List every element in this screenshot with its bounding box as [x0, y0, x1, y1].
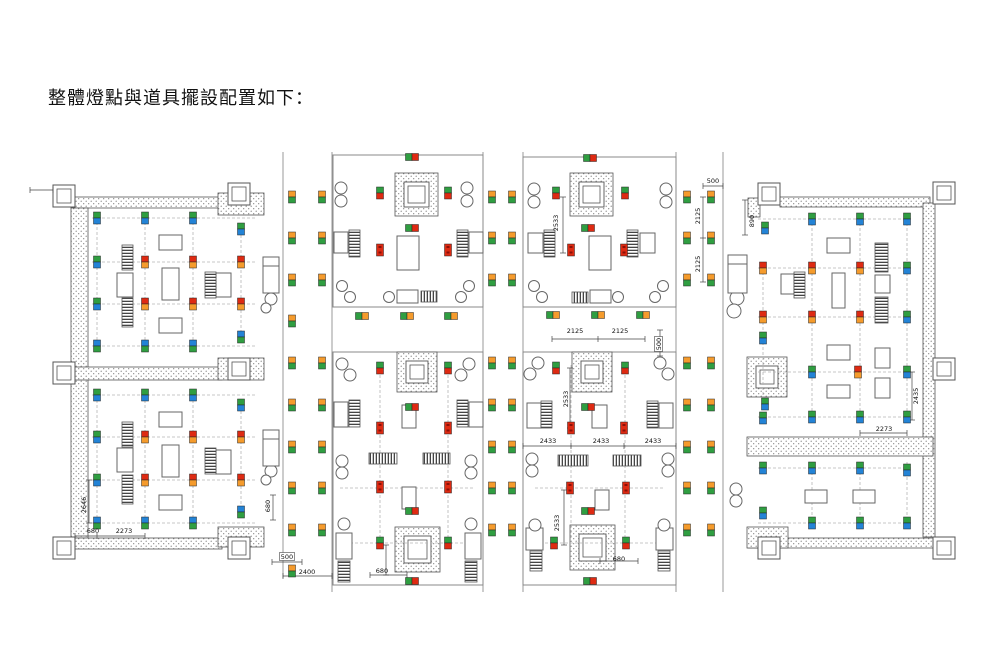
furniture-table [397, 236, 419, 270]
furniture-stool [529, 281, 540, 292]
light-marker [445, 244, 452, 256]
light-marker [637, 312, 644, 319]
furniture-stool [613, 292, 624, 303]
light-marker [551, 537, 558, 543]
light-marker [412, 404, 419, 411]
furniture-table [527, 403, 541, 428]
light-marker [289, 197, 296, 203]
dimension-label: 2533 [552, 215, 560, 232]
dimension-label: 2125 [612, 327, 629, 335]
light-marker [289, 274, 296, 280]
dimension-label: 500 [281, 553, 293, 561]
light-marker [684, 405, 691, 411]
light-marker [568, 244, 575, 256]
light-marker [643, 312, 650, 319]
light-marker [412, 154, 419, 161]
furniture-table [336, 533, 352, 559]
light-marker [319, 363, 326, 369]
corner-column-inner [57, 366, 71, 380]
furniture-stool [335, 195, 347, 207]
light-marker [319, 441, 326, 447]
furniture-table [334, 232, 348, 253]
light-marker [809, 372, 816, 378]
furniture-stool [532, 357, 544, 369]
light-marker [684, 357, 691, 363]
wall-hatch [71, 538, 222, 549]
dimension-label: 2646 [80, 497, 88, 514]
furniture-bench [349, 230, 360, 257]
light-marker [142, 304, 149, 310]
light-marker [445, 422, 452, 434]
light-marker [142, 262, 149, 268]
light-marker [142, 298, 149, 304]
light-marker [319, 405, 326, 411]
light-marker [377, 481, 384, 493]
furniture-stool [526, 465, 538, 477]
light-marker [238, 304, 245, 310]
light-marker-dot [570, 252, 573, 254]
light-marker [319, 191, 326, 197]
light-marker [553, 368, 560, 374]
light-marker-dot [379, 246, 382, 248]
light-marker [708, 191, 715, 197]
light-marker [289, 280, 296, 286]
light-marker [621, 244, 628, 256]
light-marker [94, 304, 101, 310]
light-marker [509, 197, 516, 203]
furniture-table [334, 402, 348, 427]
furniture-stool [384, 292, 395, 303]
light-marker [412, 508, 419, 515]
light-marker [708, 232, 715, 238]
dimension-label: 2533 [553, 515, 561, 532]
light-marker [684, 524, 691, 530]
light-marker [489, 357, 496, 363]
light-marker [760, 418, 767, 424]
light-marker [190, 212, 197, 218]
light-marker [857, 517, 864, 523]
light-marker [142, 218, 149, 224]
light-marker [190, 431, 197, 437]
light-marker [857, 411, 864, 417]
light-marker [708, 357, 715, 363]
light-marker [857, 523, 864, 529]
furniture-bench [544, 230, 555, 257]
furniture-stool [465, 455, 477, 467]
light-marker [622, 187, 629, 193]
light-marker [406, 578, 413, 585]
wall-hatch [747, 437, 933, 456]
light-marker [289, 482, 296, 488]
light-marker [857, 268, 864, 274]
light-marker-dot [623, 424, 626, 426]
furniture-bench [369, 453, 397, 464]
light-marker [451, 313, 458, 320]
light-marker [553, 187, 560, 193]
light-marker [190, 389, 197, 395]
corner-column-inner [937, 186, 951, 200]
light-marker [489, 280, 496, 286]
light-marker [412, 578, 419, 585]
furniture-table [595, 490, 609, 510]
light-marker [684, 399, 691, 405]
furniture-bench [457, 230, 468, 257]
light-marker [809, 219, 816, 225]
dimension-label: 680 [87, 527, 99, 535]
wall-hatch [780, 197, 930, 207]
light-marker [582, 404, 589, 411]
light-marker [708, 405, 715, 411]
light-marker [412, 225, 419, 232]
light-marker [588, 404, 595, 411]
wall-hatch [71, 197, 222, 208]
light-marker [708, 399, 715, 405]
light-marker [809, 411, 816, 417]
light-marker [857, 462, 864, 468]
light-marker [489, 363, 496, 369]
light-marker [319, 280, 326, 286]
light-marker [598, 312, 605, 319]
dimension-label: 890 [748, 215, 756, 227]
light-marker-dot [623, 252, 626, 254]
furniture-bench [122, 475, 133, 504]
light-marker [857, 219, 864, 225]
light-marker [319, 197, 326, 203]
light-marker [94, 298, 101, 304]
light-marker [142, 480, 149, 486]
light-marker [142, 340, 149, 346]
light-marker [445, 543, 452, 549]
furniture-stool [456, 292, 467, 303]
light-marker [289, 488, 296, 494]
light-marker [142, 256, 149, 262]
light-marker [809, 517, 816, 523]
light-marker [238, 298, 245, 304]
light-marker [489, 447, 496, 453]
corner-column-inner [57, 189, 71, 203]
light-marker [142, 389, 149, 395]
light-marker [489, 441, 496, 447]
furniture-stool [660, 183, 672, 195]
light-marker [190, 256, 197, 262]
light-marker [289, 315, 296, 321]
light-marker [142, 431, 149, 437]
corner-column-inner [762, 187, 776, 201]
light-marker [684, 280, 691, 286]
light-marker [857, 262, 864, 268]
light-marker [445, 537, 452, 543]
furniture-table [469, 232, 483, 253]
light-marker [622, 193, 629, 199]
furniture-table [827, 385, 850, 398]
light-marker [190, 298, 197, 304]
furniture-bench [122, 245, 133, 270]
light-marker [94, 431, 101, 437]
light-marker [684, 488, 691, 494]
corner-column-inner [232, 362, 246, 376]
furniture-table [162, 445, 179, 477]
light-marker [238, 431, 245, 437]
light-marker [553, 193, 560, 199]
furniture-table [159, 412, 182, 427]
light-marker [857, 317, 864, 323]
furniture-bench [205, 448, 216, 474]
light-marker-dot [447, 489, 450, 491]
light-marker [190, 480, 197, 486]
light-marker [547, 312, 554, 319]
furniture-table [159, 318, 182, 333]
light-marker [289, 571, 296, 577]
furniture-stool [461, 182, 473, 194]
dimension-label: 2435 [912, 388, 920, 405]
furniture-table [162, 268, 179, 300]
light-marker [489, 197, 496, 203]
light-marker [553, 362, 560, 368]
light-marker [904, 523, 911, 529]
light-marker [708, 238, 715, 244]
floor-plan-drawing: 2646680227368050024006802533212521255002… [0, 0, 1000, 668]
light-marker [489, 238, 496, 244]
light-marker [904, 317, 911, 323]
furniture-stool [660, 196, 672, 208]
light-marker [592, 312, 599, 319]
furniture-stool [344, 369, 356, 381]
corner-column-inner [762, 541, 776, 555]
light-marker [809, 268, 816, 274]
light-marker [289, 321, 296, 327]
light-marker [94, 212, 101, 218]
furniture-stool [528, 196, 540, 208]
light-marker [142, 437, 149, 443]
light-marker [708, 488, 715, 494]
light-marker [94, 517, 101, 523]
light-marker-dot [569, 484, 572, 486]
furniture-table [875, 348, 890, 368]
corner-column-inner [57, 541, 71, 555]
light-marker [94, 340, 101, 346]
furniture-table [402, 487, 416, 509]
dimension-label: 2533 [562, 391, 570, 408]
dimension-label: 680 [376, 567, 388, 575]
light-marker [762, 404, 769, 410]
light-marker [445, 368, 452, 374]
light-marker [584, 155, 591, 162]
furniture-stool [537, 292, 548, 303]
light-marker [509, 488, 516, 494]
light-marker [489, 482, 496, 488]
light-marker [489, 405, 496, 411]
light-marker [553, 312, 560, 319]
furniture-table [875, 378, 890, 398]
furniture-bench [457, 400, 468, 427]
furniture-stool [658, 519, 670, 531]
light-marker [708, 280, 715, 286]
light-marker [377, 187, 384, 193]
light-marker [809, 462, 816, 468]
light-marker [708, 363, 715, 369]
furniture-bench [423, 453, 450, 464]
light-marker [588, 225, 595, 232]
light-marker [238, 399, 245, 405]
dimension-label: 2273 [116, 527, 133, 535]
corner-column-inner [232, 541, 246, 555]
furniture-stool [654, 357, 666, 369]
light-marker [319, 399, 326, 405]
furniture-stool [336, 358, 348, 370]
light-marker [377, 422, 384, 434]
furniture-table [875, 275, 890, 293]
light-marker [94, 346, 101, 352]
furniture-stool [336, 467, 348, 479]
light-marker [190, 346, 197, 352]
light-marker [489, 274, 496, 280]
light-marker [622, 362, 629, 368]
light-marker [489, 488, 496, 494]
light-marker [289, 530, 296, 536]
furniture-bench [794, 272, 805, 298]
furniture-table [805, 490, 827, 503]
furniture-table [528, 233, 543, 253]
furniture-table [117, 448, 133, 472]
light-marker [904, 470, 911, 476]
light-marker [760, 262, 767, 268]
hatch-column-core-inner [583, 538, 602, 557]
light-marker [407, 313, 414, 320]
document-page: 整體燈點與道具擺設配置如下： 2646680227368050024006802… [0, 0, 1000, 668]
light-marker [377, 368, 384, 374]
corner-column-inner [232, 187, 246, 201]
light-marker [509, 524, 516, 530]
light-marker [238, 256, 245, 262]
light-marker [289, 238, 296, 244]
furniture-table [117, 273, 133, 297]
light-marker [238, 512, 245, 518]
furniture-bench [465, 561, 477, 582]
light-marker [238, 506, 245, 512]
light-marker [904, 268, 911, 274]
furniture-bench [647, 401, 658, 428]
light-marker [142, 395, 149, 401]
hatch-column-core-inner [583, 186, 600, 203]
furniture-table [832, 273, 845, 308]
furniture-stool [662, 453, 674, 465]
light-marker [762, 398, 769, 404]
light-marker [708, 482, 715, 488]
light-marker [509, 530, 516, 536]
light-marker-dot [447, 430, 450, 432]
light-marker-dot [379, 252, 382, 254]
light-marker [904, 464, 911, 470]
light-marker-dot [625, 490, 628, 492]
furniture-table [469, 402, 483, 427]
furniture-bench [349, 400, 360, 427]
light-marker [289, 524, 296, 530]
dimension-label: 2125 [567, 327, 584, 335]
furniture-stool [455, 369, 467, 381]
light-marker [190, 262, 197, 268]
dimension-label: 2400 [299, 568, 316, 576]
furniture-table [659, 403, 673, 428]
light-marker [509, 232, 516, 238]
light-marker-dot [447, 246, 450, 248]
furniture-table [397, 290, 418, 303]
light-marker [142, 517, 149, 523]
light-marker [809, 317, 816, 323]
light-marker [190, 340, 197, 346]
light-marker [857, 311, 864, 317]
light-marker [319, 482, 326, 488]
furniture-bench [658, 551, 670, 571]
furniture-stool [730, 483, 742, 495]
light-marker [684, 441, 691, 447]
light-marker [289, 565, 296, 571]
light-marker [238, 337, 245, 343]
light-marker [319, 447, 326, 453]
furniture-table [589, 236, 611, 270]
furniture-stool [727, 304, 741, 318]
light-marker [904, 417, 911, 423]
corner-column-inner [937, 541, 951, 555]
light-marker [904, 311, 911, 317]
light-marker [588, 508, 595, 515]
wall-hatch [71, 367, 222, 380]
dimension-label: 2125 [694, 256, 702, 273]
light-marker [762, 222, 769, 228]
furniture-stool [730, 495, 742, 507]
light-marker [809, 262, 816, 268]
light-marker [590, 578, 597, 585]
furniture-stool [465, 518, 477, 530]
light-marker-dot [447, 424, 450, 426]
corner-column-inner [937, 362, 951, 376]
light-marker [684, 191, 691, 197]
light-marker [489, 232, 496, 238]
light-marker [708, 524, 715, 530]
furniture-stool [526, 453, 538, 465]
light-marker [760, 462, 767, 468]
dimension-label: 2433 [645, 437, 662, 445]
light-marker [857, 417, 864, 423]
furniture-bench [572, 292, 588, 303]
dimension-label: 2125 [694, 208, 702, 225]
dimension-label: 2433 [593, 437, 610, 445]
light-marker [509, 482, 516, 488]
light-marker [289, 232, 296, 238]
light-marker [289, 191, 296, 197]
light-marker [684, 274, 691, 280]
light-marker [489, 399, 496, 405]
light-marker [190, 437, 197, 443]
light-marker [857, 213, 864, 219]
light-marker-dot [379, 489, 382, 491]
light-marker [568, 422, 575, 434]
light-marker [401, 313, 408, 320]
light-marker [142, 474, 149, 480]
light-marker [489, 524, 496, 530]
light-marker [238, 437, 245, 443]
light-marker [289, 363, 296, 369]
light-marker [623, 543, 630, 549]
furniture-table [159, 235, 182, 250]
light-marker [509, 441, 516, 447]
light-marker [238, 262, 245, 268]
light-marker [94, 218, 101, 224]
light-marker [762, 228, 769, 234]
light-marker-dot [623, 430, 626, 432]
light-marker [94, 474, 101, 480]
furniture-stool [650, 292, 661, 303]
light-marker [319, 524, 326, 530]
